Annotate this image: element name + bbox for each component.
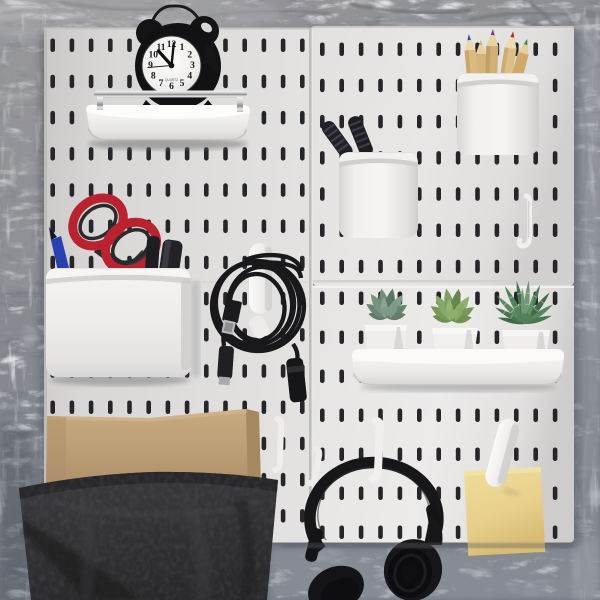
svg-text:8: 8 [151, 72, 156, 82]
svg-text:3: 3 [190, 61, 195, 71]
svg-text:12: 12 [167, 40, 177, 50]
svg-text:9: 9 [148, 61, 153, 71]
svg-text:7: 7 [159, 79, 164, 89]
svg-text:5: 5 [180, 79, 185, 89]
svg-text:2: 2 [187, 51, 192, 61]
svg-text:4: 4 [187, 72, 192, 82]
svg-text:QUARTZ: QUARTZ [165, 78, 178, 82]
svg-text:1: 1 [180, 43, 185, 53]
